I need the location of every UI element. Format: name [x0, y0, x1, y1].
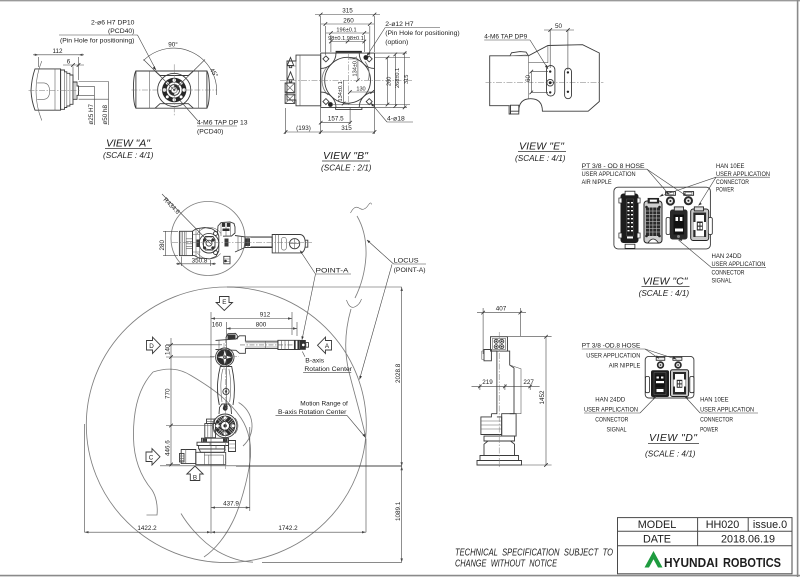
svg-text:157.5: 157.5 — [328, 116, 344, 123]
svg-text:4-M6 TAP DP9: 4-M6 TAP DP9 — [484, 34, 527, 41]
svg-text:315: 315 — [342, 8, 353, 15]
svg-text:219: 219 — [482, 379, 493, 386]
svg-text:90°: 90° — [168, 41, 178, 49]
svg-text:(PCD40): (PCD40) — [108, 28, 134, 35]
svg-text:HAN 10EE: HAN 10EE — [700, 397, 729, 404]
svg-text:315: 315 — [341, 125, 352, 132]
svg-text:98±0.1,98±0.1: 98±0.1,98±0.1 — [328, 36, 364, 42]
svg-text:268±0.1: 268±0.1 — [395, 68, 401, 88]
svg-text:VIEW "B": VIEW "B" — [323, 150, 369, 162]
svg-text:260: 260 — [343, 17, 354, 24]
svg-text:446.6: 446.6 — [164, 440, 171, 456]
svg-text:ø25 H7: ø25 H7 — [88, 103, 95, 124]
svg-text:(SCALE : 4/1): (SCALE : 4/1) — [639, 289, 690, 298]
svg-text:2028.8: 2028.8 — [395, 363, 402, 383]
svg-text:130: 130 — [356, 86, 365, 92]
svg-text:2-ø6 H7 DP10: 2-ø6 H7 DP10 — [91, 20, 135, 27]
svg-text:6: 6 — [67, 59, 71, 66]
svg-text:HAN 24DD: HAN 24DD — [595, 397, 625, 404]
svg-text:770: 770 — [164, 388, 171, 399]
svg-text:VIEW "C": VIEW "C" — [643, 276, 689, 288]
svg-text:2-ø12 H7: 2-ø12 H7 — [385, 21, 414, 28]
svg-text:4-M6 TAP DP 13: 4-M6 TAP DP 13 — [197, 120, 248, 127]
svg-text:HAN 10EE: HAN 10EE — [716, 163, 745, 170]
svg-text:Motion Range of: Motion Range of — [300, 401, 348, 408]
svg-text:60: 60 — [525, 74, 532, 82]
svg-text:USER APPLICATION: USER APPLICATION — [716, 171, 770, 178]
svg-text:CONNECTOR: CONNECTOR — [595, 417, 628, 424]
svg-text:B: B — [193, 475, 197, 482]
svg-text:134±0.1: 134±0.1 — [352, 56, 358, 76]
svg-text:4-ø18: 4-ø18 — [387, 116, 405, 123]
svg-text:Rotation Center: Rotation Center — [304, 366, 352, 373]
svg-text:MODEL: MODEL — [638, 519, 676, 531]
svg-text:USER APPLICATION: USER APPLICATION — [584, 407, 638, 414]
svg-text:(Pin Hole for positioning): (Pin Hole for positioning) — [60, 38, 134, 45]
svg-text:(option): (option) — [385, 39, 408, 46]
svg-text:AIR NIPPLE: AIR NIPPLE — [582, 179, 612, 186]
svg-text:USER APPLICATION: USER APPLICATION — [700, 407, 754, 414]
svg-text:PT 3/8 -OD.8 HOSE: PT 3/8 -OD.8 HOSE — [582, 343, 641, 350]
svg-text:407: 407 — [496, 306, 507, 313]
svg-text:LOCUS: LOCUS — [394, 258, 419, 265]
svg-text:196±0.1: 196±0.1 — [336, 27, 356, 33]
svg-text:134±0.1: 134±0.1 — [338, 81, 344, 101]
svg-text:CONNECTOR: CONNECTOR — [716, 179, 749, 186]
svg-text:1742.2: 1742.2 — [278, 525, 298, 532]
svg-text:112: 112 — [52, 48, 63, 55]
svg-text:912: 912 — [260, 312, 271, 319]
svg-text:DATE: DATE — [643, 534, 671, 546]
svg-text:B-axis: B-axis — [305, 357, 324, 364]
svg-text:(193): (193) — [296, 125, 311, 132]
svg-text:(SCALE : 4/1): (SCALE : 4/1) — [515, 154, 566, 163]
svg-text:ROBOTICS: ROBOTICS — [723, 555, 781, 570]
svg-text:VIEW "E": VIEW "E" — [519, 141, 565, 153]
svg-text:USER APPLICATION: USER APPLICATION — [582, 171, 636, 178]
svg-text:SIGNAL: SIGNAL — [712, 277, 732, 284]
svg-text:AIR NIPPLE: AIR NIPPLE — [609, 362, 641, 369]
svg-text:VIEW "A": VIEW "A" — [106, 138, 151, 150]
svg-text:2018.06.19: 2018.06.19 — [721, 534, 775, 546]
svg-text:CONNECTOR: CONNECTOR — [712, 269, 745, 276]
svg-text:(SCALE : 2/1): (SCALE : 2/1) — [321, 164, 372, 173]
svg-text:VIEW "D": VIEW "D" — [649, 432, 698, 444]
svg-text:227: 227 — [523, 379, 534, 386]
svg-text:POWER: POWER — [716, 186, 734, 193]
svg-text:1089.1: 1089.1 — [395, 501, 402, 521]
svg-text:issue.0: issue.0 — [753, 519, 787, 531]
svg-text:E: E — [222, 299, 226, 306]
svg-text:315: 315 — [404, 75, 410, 84]
svg-text:USER APPLICATION: USER APPLICATION — [712, 261, 766, 268]
svg-text:1422.2: 1422.2 — [137, 525, 157, 532]
svg-text:280: 280 — [159, 239, 166, 250]
svg-text:260: 260 — [387, 77, 393, 86]
svg-text:TECHNICAL SPECIFICATION SUBJEC: TECHNICAL SPECIFICATION SUBJECT TO — [455, 548, 613, 559]
svg-text:(Pin Hole for positioning): (Pin Hole for positioning) — [385, 30, 459, 37]
svg-text:800: 800 — [256, 322, 267, 329]
svg-text:(POINT-A): (POINT-A) — [394, 267, 426, 274]
svg-text:50: 50 — [555, 23, 563, 30]
svg-text:HYUNDAI: HYUNDAI — [664, 555, 718, 570]
svg-text:(SCALE : 4/1): (SCALE : 4/1) — [103, 151, 154, 160]
svg-text:D: D — [149, 343, 154, 350]
svg-text:B-axis Rotation Center: B-axis Rotation Center — [278, 409, 347, 416]
svg-text:350.8: 350.8 — [192, 257, 208, 264]
svg-text:ø50 h8: ø50 h8 — [102, 104, 109, 124]
svg-text:PT 3/8 - OD 8 HOSE: PT 3/8 - OD 8 HOSE — [582, 163, 645, 170]
svg-text:1452: 1452 — [539, 390, 546, 405]
svg-text:CHANGE WITHOUT NOTICE: CHANGE WITHOUT NOTICE — [455, 558, 557, 569]
svg-text:(SCALE : 4/1): (SCALE : 4/1) — [645, 450, 696, 459]
svg-text:POINT-A: POINT-A — [316, 268, 350, 275]
svg-text:CONNECTOR: CONNECTOR — [700, 417, 733, 424]
svg-text:POWER: POWER — [700, 427, 718, 434]
svg-text:USER APPLICATION: USER APPLICATION — [586, 352, 640, 359]
svg-text:(PCD40): (PCD40) — [197, 129, 223, 136]
svg-text:160: 160 — [212, 322, 223, 329]
svg-text:HH020: HH020 — [706, 519, 740, 531]
svg-text:SIGNAL: SIGNAL — [607, 427, 627, 434]
svg-text:HAN 24DD: HAN 24DD — [712, 253, 742, 260]
svg-text:C: C — [149, 455, 154, 462]
svg-text:437.9: 437.9 — [223, 500, 239, 507]
